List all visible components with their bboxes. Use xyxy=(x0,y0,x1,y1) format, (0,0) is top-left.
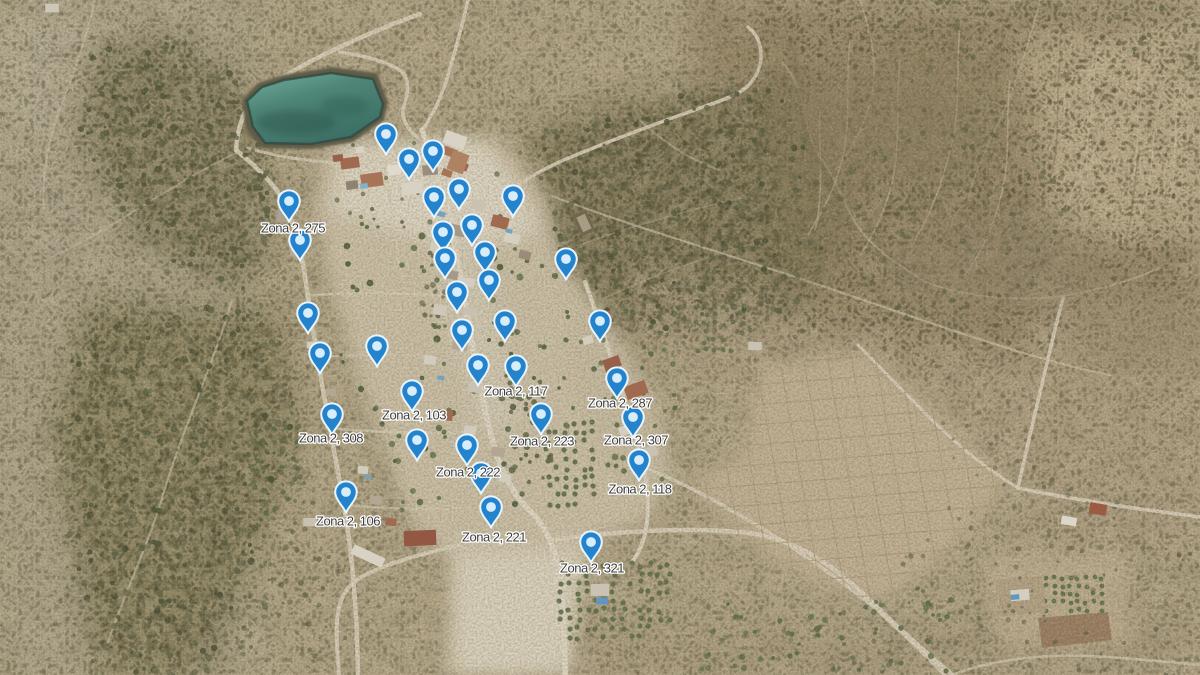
svg-text:Zona 2, 321: Zona 2, 321 xyxy=(560,561,624,576)
svg-text:Zona 2, 287: Zona 2, 287 xyxy=(588,396,652,411)
svg-text:Zona 2, 275: Zona 2, 275 xyxy=(261,221,325,236)
svg-text:Zona 2, 223: Zona 2, 223 xyxy=(510,434,574,449)
svg-text:Zona 2, 118: Zona 2, 118 xyxy=(609,482,672,497)
svg-text:Zona 2, 222: Zona 2, 222 xyxy=(436,465,500,480)
svg-text:Zona 2, 106: Zona 2, 106 xyxy=(316,514,380,529)
svg-text:Zona 2, 221: Zona 2, 221 xyxy=(462,530,526,545)
svg-text:Zona 2, 103: Zona 2, 103 xyxy=(382,408,446,423)
svg-text:Zona 2, 308: Zona 2, 308 xyxy=(299,431,363,446)
svg-text:Zona 2, 307: Zona 2, 307 xyxy=(604,433,668,448)
svg-text:Zona 2, 117: Zona 2, 117 xyxy=(485,384,548,399)
